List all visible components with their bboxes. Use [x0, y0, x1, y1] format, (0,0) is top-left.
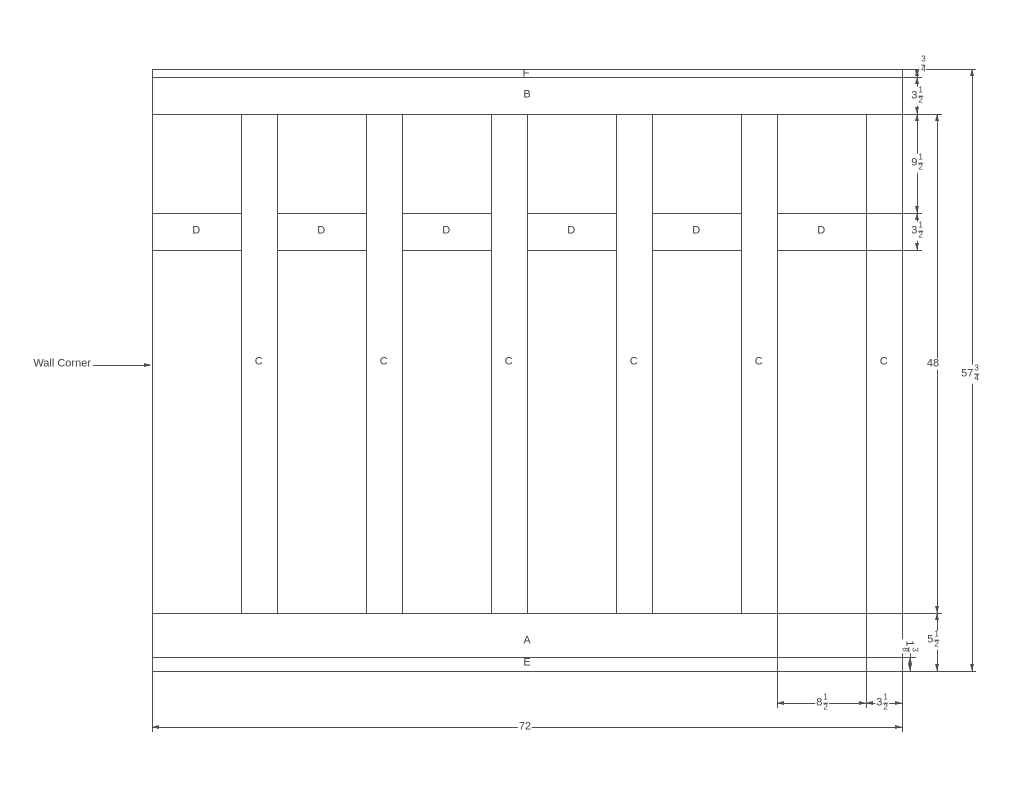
- dim-denominator: 4: [974, 374, 978, 384]
- mid-rail-3-top-edge: [402, 213, 491, 214]
- arrowhead: [152, 725, 159, 729]
- dim-whole: 3: [911, 226, 917, 237]
- field-bottom-edge: [152, 613, 942, 614]
- dim-denominator: 8: [900, 647, 910, 651]
- bottom-rail-bottom-edge: [152, 657, 916, 658]
- dim-numerator: 1: [823, 694, 827, 703]
- top-cap-top-edge: [152, 69, 976, 70]
- dim-top-rail-height: 312: [910, 87, 924, 106]
- dim-mid-rail-height: 312: [910, 222, 924, 241]
- dim-field-height: 48: [926, 359, 940, 370]
- dim-panel-width: 812: [815, 694, 829, 713]
- top-rail-bottom-edge: [152, 114, 942, 115]
- arrowhead: [915, 114, 919, 121]
- arrowhead: [915, 70, 919, 77]
- dim-numerator: 1: [918, 154, 922, 163]
- wall-corner-arrowhead: [144, 363, 151, 367]
- mid-rail-4-top-edge: [527, 213, 616, 214]
- dim-batten-width: 312: [875, 694, 889, 713]
- batten-3-left-edge: [491, 114, 492, 613]
- part-label-mid-rail-2: D: [317, 226, 325, 237]
- dim-numerator: 3: [910, 647, 919, 651]
- arrowhead: [935, 114, 939, 121]
- mid-rail-5-top-edge: [652, 213, 741, 214]
- base-cap-bottom-edge: [152, 671, 976, 672]
- mid-rail-1-top-edge: [152, 213, 241, 214]
- arrowhead: [970, 664, 974, 671]
- batten-5-left-edge: [741, 114, 742, 613]
- dim-numerator: 1: [883, 694, 887, 703]
- dim-whole: 72: [519, 722, 531, 733]
- wall-right-edge: [902, 69, 903, 732]
- arrowhead: [915, 77, 919, 84]
- arrowhead: [915, 107, 919, 114]
- part-label-top-cap: F: [523, 69, 530, 80]
- mid-rail-bottom-extension-line: [866, 250, 923, 251]
- arrowhead: [935, 613, 939, 620]
- part-label-batten-3: C: [505, 357, 513, 368]
- arrowhead: [915, 206, 919, 213]
- part-label-bottom-rail: A: [523, 636, 530, 647]
- part-label-batten-6: C: [880, 357, 888, 368]
- dim-line-right-middle: [937, 114, 938, 671]
- dim-whole: 5: [927, 635, 933, 646]
- mid-rail-5-bottom-edge: [652, 250, 741, 251]
- dim-denominator: 2: [918, 231, 922, 241]
- arrowhead: [866, 701, 873, 705]
- dim-whole: 1: [904, 640, 915, 646]
- batten-4-left-edge: [616, 114, 617, 613]
- batten-1-right-edge: [277, 114, 278, 613]
- dim-numerator: 3: [974, 365, 978, 374]
- dim-whole: 48: [927, 359, 939, 370]
- dim-numerator: 1: [934, 631, 938, 640]
- dim-bottom-section-height: 512: [926, 631, 940, 650]
- dim-numerator: 1: [918, 222, 922, 231]
- dim-whole: 9: [911, 158, 917, 169]
- arrowhead: [935, 664, 939, 671]
- mid-rail-6-top-edge: [777, 213, 866, 214]
- arrowhead: [935, 606, 939, 613]
- part-label-mid-rail-6: D: [817, 226, 825, 237]
- mid-rail-1-bottom-edge: [152, 250, 241, 251]
- mid-rail-2-bottom-edge: [277, 250, 366, 251]
- batten-1-left-edge: [241, 114, 242, 613]
- top-cap-bottom-edge: [152, 77, 922, 78]
- dim-base-cap-height: 138: [900, 639, 919, 653]
- mid-rail-2-top-edge: [277, 213, 366, 214]
- part-label-top-rail: B: [523, 90, 530, 101]
- dim-whole: 8: [816, 698, 822, 709]
- batten-3-right-edge: [527, 114, 528, 613]
- batten-2-right-edge: [402, 114, 403, 613]
- dim-denominator: 2: [918, 96, 922, 106]
- dim-total-width: 72: [518, 722, 532, 733]
- part-label-batten-5: C: [755, 357, 763, 368]
- part-label-mid-rail-4: D: [567, 226, 575, 237]
- dim-denominator: 4: [921, 65, 925, 75]
- arrowhead: [895, 725, 902, 729]
- arrowhead: [908, 657, 912, 664]
- part-label-mid-rail-3: D: [442, 226, 450, 237]
- dim-rail-gap: 912: [910, 154, 924, 173]
- mid-rail-4-bottom-edge: [527, 250, 616, 251]
- wall-left-edge: [152, 69, 153, 732]
- dim-whole: 3: [911, 91, 917, 102]
- batten-4-right-edge: [652, 114, 653, 613]
- part-label-batten-4: C: [630, 357, 638, 368]
- dim-whole: 57: [961, 369, 973, 380]
- part-label-base-cap: E: [523, 658, 530, 669]
- wainscoting-elevation-drawing: Wall Corner F B A E D D D D D D C C C C …: [0, 0, 1024, 791]
- wall-corner-leader-line: [93, 365, 150, 366]
- dim-denominator: 2: [823, 703, 827, 713]
- part-label-mid-rail-5: D: [692, 226, 700, 237]
- arrowhead: [908, 664, 912, 671]
- dim-cap-height: 34: [919, 56, 926, 75]
- dim-total-height: 5734: [960, 365, 980, 384]
- dim-whole: 3: [876, 698, 882, 709]
- arrowhead: [777, 701, 784, 705]
- arrowhead: [915, 243, 919, 250]
- batten-2-left-edge: [366, 114, 367, 613]
- dim-denominator: 2: [934, 640, 938, 650]
- part-label-batten-1: C: [255, 357, 263, 368]
- arrowhead: [859, 701, 866, 705]
- arrowhead: [970, 69, 974, 76]
- mid-rail-6-bottom-edge: [777, 250, 866, 251]
- mid-rail-3-bottom-edge: [402, 250, 491, 251]
- dim-denominator: 2: [918, 163, 922, 173]
- part-label-batten-2: C: [380, 357, 388, 368]
- arrowhead: [895, 701, 902, 705]
- dim-numerator: 1: [918, 87, 922, 96]
- dim-numerator: 3: [921, 56, 925, 65]
- arrowhead: [915, 213, 919, 220]
- part-label-mid-rail-1: D: [192, 226, 200, 237]
- batten-6-left-edge-with-extension: [866, 114, 867, 708]
- dim-denominator: 2: [883, 703, 887, 713]
- wall-corner-label: Wall Corner: [33, 359, 91, 370]
- batten-5-right-edge-with-extension: [777, 114, 778, 708]
